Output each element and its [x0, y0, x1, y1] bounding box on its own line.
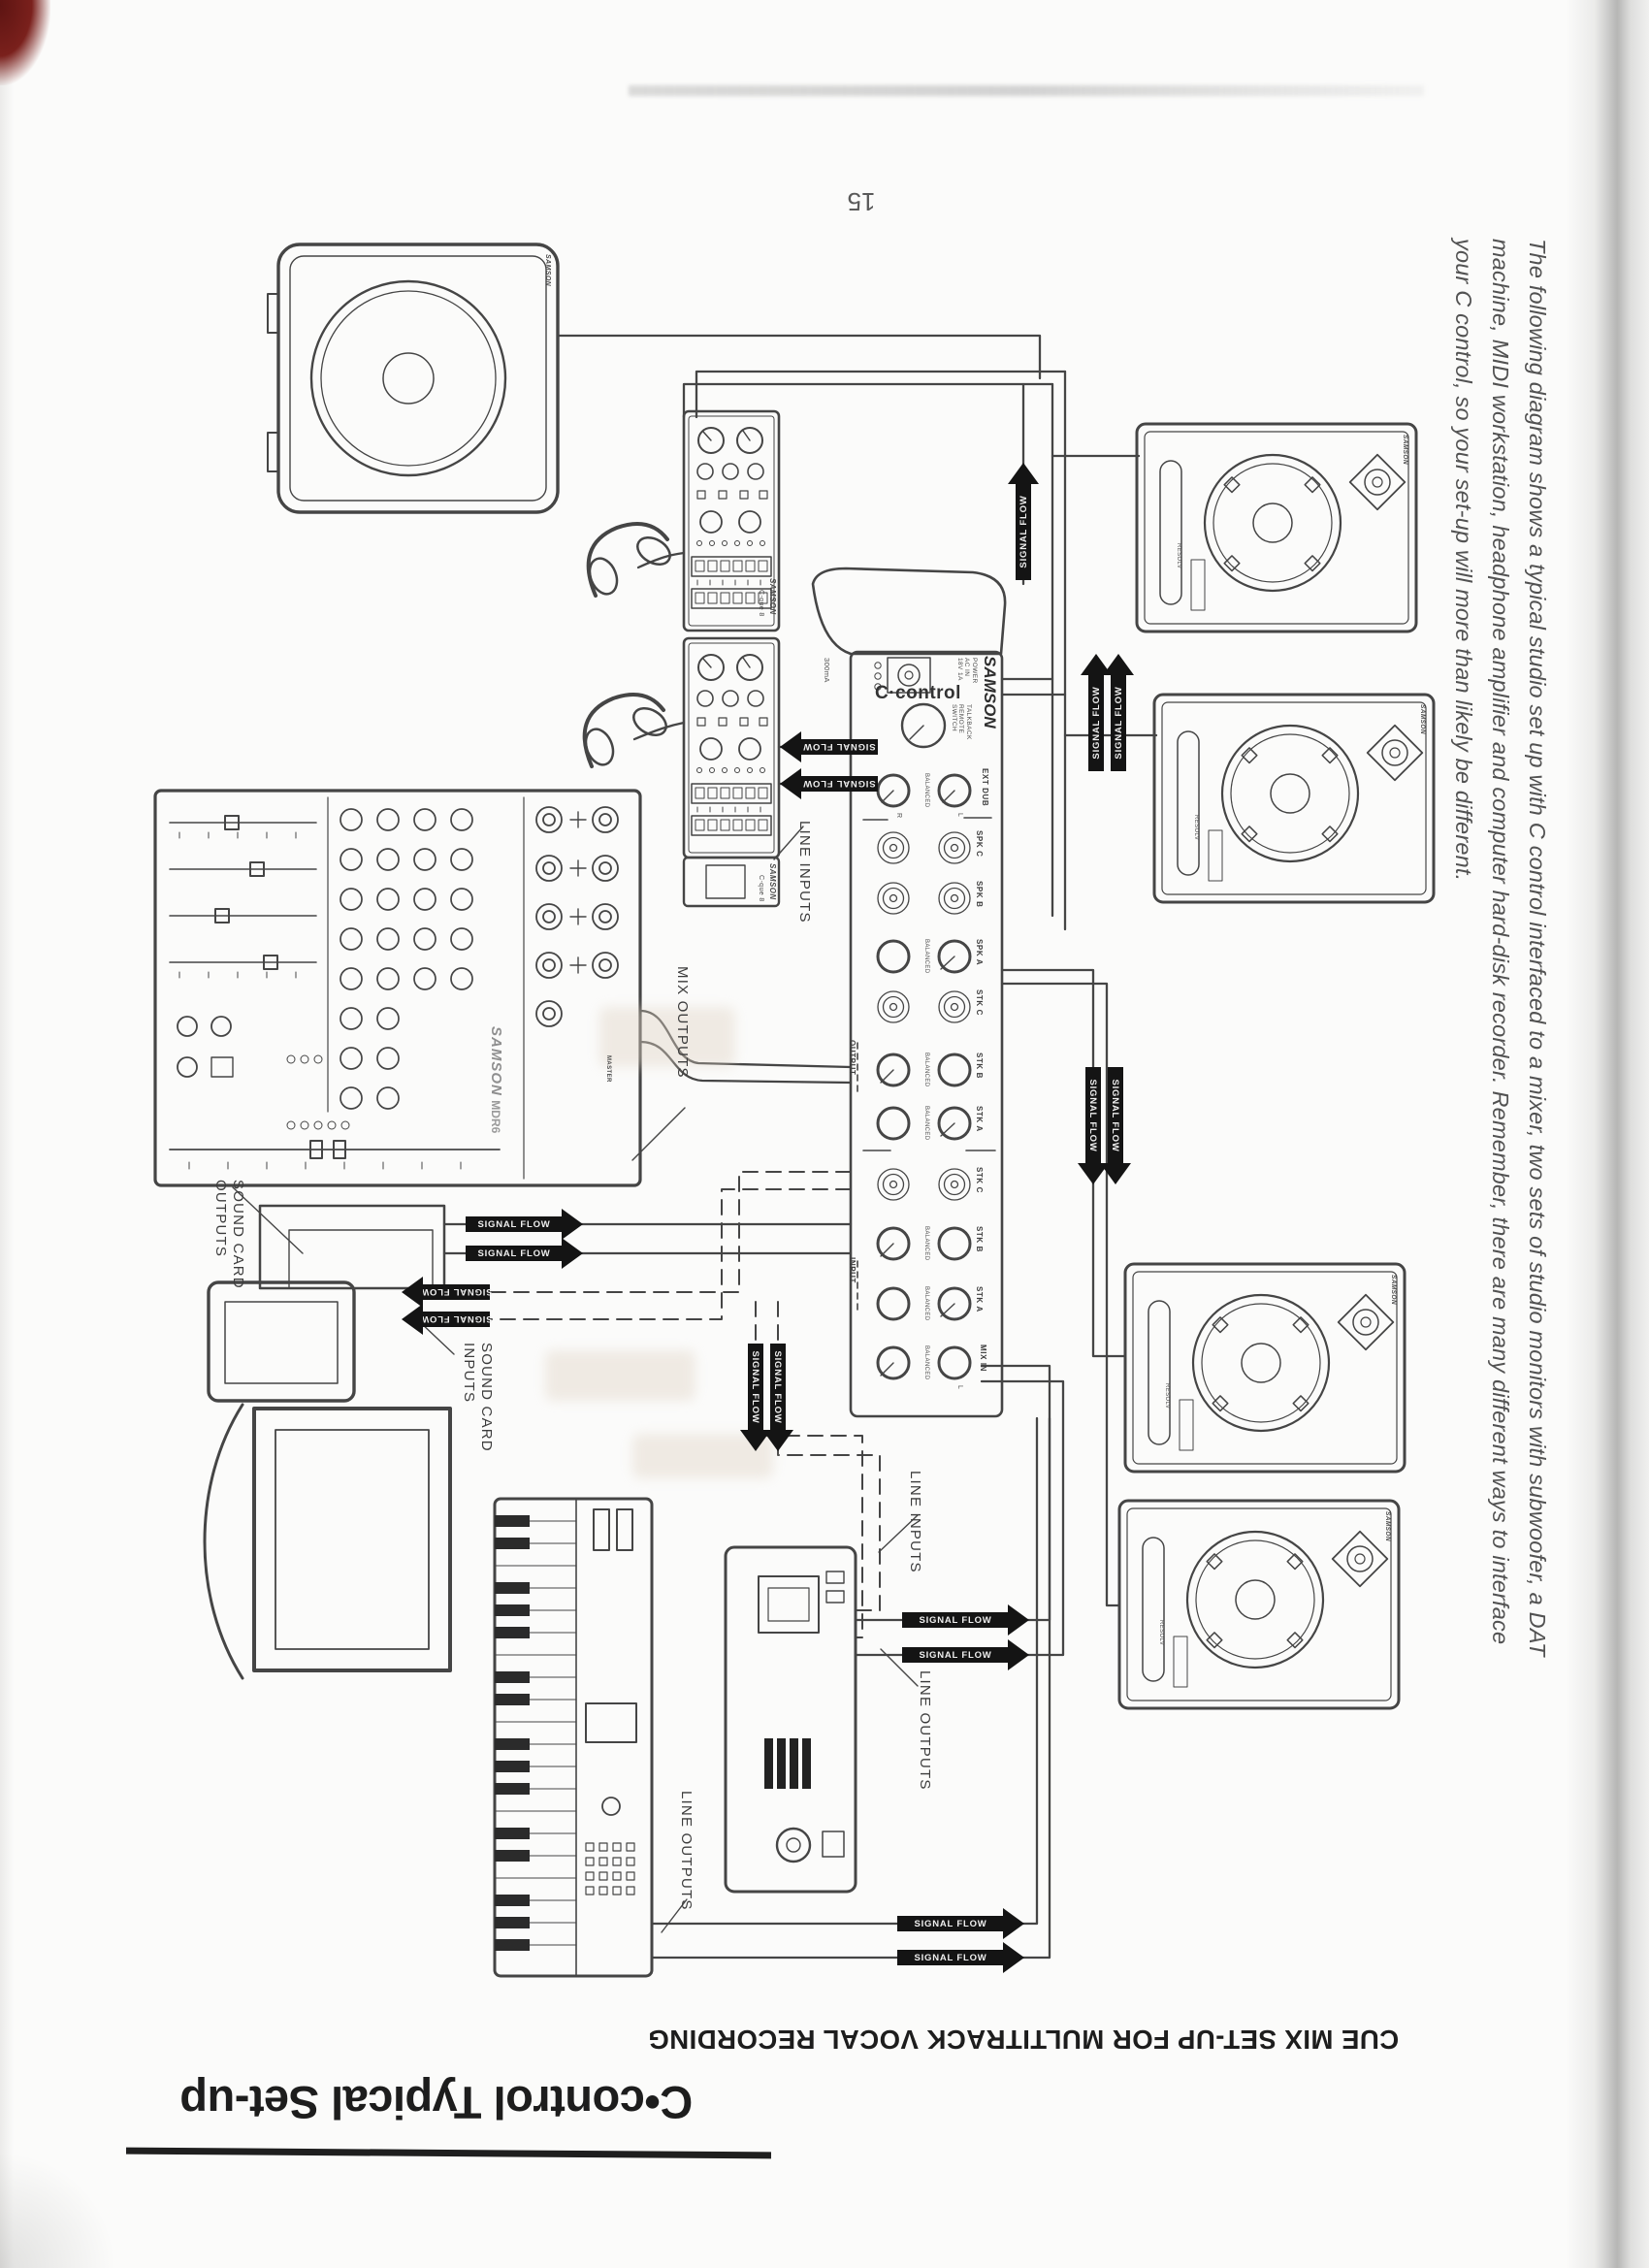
page-number: 15 [832, 186, 890, 216]
monitor-brand: SAMSON [1384, 1511, 1392, 1541]
c-control-section-input: INPUT [848, 1257, 857, 1283]
jack-label: STK C [975, 989, 984, 1016]
signal-flow-arrow: SIGNAL FLOW [1085, 1067, 1101, 1164]
signal-flow-arrow: SIGNAL FLOW [422, 1284, 490, 1300]
label-line-inputs-dat: LINE INPUTS [906, 1471, 923, 1573]
jack-letter-l: L [956, 813, 964, 817]
c-control-talkback-label: TALKBACK REMOTE SWITCH [951, 704, 973, 740]
headphones-2 [581, 695, 671, 768]
c-control-brand: SAMSON [980, 656, 999, 729]
signal-flow-arrow: SIGNAL FLOW [897, 1916, 1004, 1931]
signal-flow-label: SIGNAL FLOW [419, 1287, 492, 1298]
signal-flow-label: SIGNAL FLOW [773, 1350, 784, 1423]
signal-flow-label: SIGNAL FLOW [751, 1350, 761, 1423]
page-subtitle: CUE MIX SET-UP FOR MULTITRACK VOCAL RECO… [524, 2024, 1523, 2055]
signal-flow-label: SIGNAL FLOW [802, 779, 875, 790]
headphone-amp-model: C-que 8 [758, 875, 765, 902]
mixer-master-label: MASTER [604, 1055, 612, 1083]
headphone-amp-brand: SAMSON [769, 578, 777, 615]
subwoofer [268, 244, 558, 512]
signal-flow-arrow: SIGNAL FLOW [770, 1344, 786, 1431]
corner-shadow [0, 2152, 116, 2268]
jack-label: STK A [975, 1106, 984, 1132]
signal-flow-arrow: SIGNAL FLOW [1016, 483, 1031, 580]
signal-flow-arrow: SIGNAL FLOW [800, 739, 878, 755]
scan-streak [629, 85, 1424, 96]
computer-monitor [205, 1405, 450, 1678]
signal-flow-arrow: SIGNAL FLOW [800, 776, 878, 792]
jack-label: STK C [975, 1167, 984, 1193]
label-mix-outputs: MIX OUTPUTS [673, 966, 691, 1079]
show-through-ghost [599, 1007, 735, 1067]
page-edge-shade [0, 0, 14, 2268]
signal-flow-arrow: SIGNAL FLOW [422, 1312, 490, 1327]
signal-flow-label: SIGNAL FLOW [1091, 686, 1102, 759]
intro-paragraph: The following diagram shows a typical st… [1445, 239, 1556, 1857]
jack-label: STK B [975, 1053, 984, 1079]
label-sound-card-outputs: SOUND CARD OUTPUTS [211, 1180, 246, 1289]
studio-monitor-2 [1154, 695, 1434, 902]
studio-monitor-4 [1119, 1501, 1399, 1708]
diagram-line-art [0, 0, 1649, 2268]
signal-flow-label: SIGNAL FLOW [919, 1650, 991, 1661]
scanned-page: 15 The following diagram shows a typical… [0, 0, 1649, 2268]
headphones-1 [585, 524, 675, 598]
page-title: C•control Typical Set-up [136, 2076, 737, 2129]
balanced-label: BALANCED [922, 773, 930, 808]
monitor-series: RESOLV [1157, 1620, 1165, 1645]
signal-flow-arrow: SIGNAL FLOW [902, 1612, 1009, 1628]
jack-label: EXT DUB [981, 768, 989, 806]
jack-label: MIX IN [979, 1345, 987, 1372]
c-control-power-label: POWER AC IN 18V 1A [956, 658, 979, 684]
balanced-label: BALANCED [922, 1226, 930, 1261]
midi-keyboard [495, 1499, 652, 1976]
monitor-series: RESOLV [1192, 815, 1200, 840]
show-through-ghost [545, 1350, 695, 1401]
signal-flow-label: SIGNAL FLOW [477, 1219, 550, 1230]
signal-flow-arrow: SIGNAL FLOW [902, 1647, 1009, 1663]
monitor-series: RESOLV [1175, 543, 1182, 568]
signal-flow-label: SIGNAL FLOW [419, 1314, 492, 1325]
balanced-label: BALANCED [922, 939, 930, 974]
headphone-amp-1 [684, 411, 779, 631]
signal-flow-arrow: SIGNAL FLOW [897, 1950, 1004, 1965]
studio-monitor-3 [1125, 1264, 1405, 1472]
balanced-label: BALANCED [922, 1286, 930, 1321]
page-curl-shadow [1566, 0, 1649, 2268]
signal-flow-label: SIGNAL FLOW [914, 1919, 986, 1929]
signal-flow-label: SIGNAL FLOW [914, 1953, 986, 1963]
mixer-brand: SAMSON [488, 1026, 504, 1096]
jack-label: SPK C [975, 830, 984, 857]
balanced-label: BALANCED [922, 1106, 930, 1141]
signal-flow-label: SIGNAL FLOW [1088, 1079, 1099, 1151]
signal-flow-label: SIGNAL FLOW [1018, 495, 1029, 567]
mixer [155, 791, 640, 1185]
monitor-brand: SAMSON [1402, 435, 1409, 465]
mixer-branding: SAMSON MDR6 [487, 1026, 504, 1133]
balanced-label: BALANCED [922, 1345, 930, 1380]
label-line-outputs-dat: LINE OUTPUTS [916, 1670, 933, 1791]
signal-flow-arrow: SIGNAL FLOW [1111, 674, 1126, 771]
jack-label: STK B [975, 1226, 984, 1252]
headphone-amp-model: C-que 8 [758, 590, 765, 617]
jack-letter-l: L [956, 1385, 964, 1389]
studio-monitor-1 [1137, 424, 1416, 632]
jack-label: SPK A [975, 939, 984, 965]
signal-flow-arrow: SIGNAL FLOW [466, 1216, 563, 1232]
subwoofer-brand: SAMSON [544, 254, 552, 286]
signal-flow-arrow: SIGNAL FLOW [1108, 1067, 1123, 1164]
label-sound-card-inputs: SOUND CARD INPUTS [460, 1343, 495, 1452]
label-line-inputs-top: LINE INPUTS [795, 821, 813, 923]
intro-line-3: your C control, so your set-up will more… [1445, 239, 1482, 1857]
jack-label: SPK B [975, 881, 984, 907]
jack-letter-r: R [895, 813, 903, 818]
c-control-section-output: OUTPUT [848, 1040, 857, 1076]
signal-flow-label: SIGNAL FLOW [1111, 1079, 1121, 1151]
jack-label: STK A [975, 1286, 984, 1312]
balanced-label: BALANCED [922, 1053, 930, 1087]
intro-line-1: The following diagram shows a typical st… [1519, 239, 1556, 1857]
signal-flow-label: SIGNAL FLOW [802, 742, 875, 753]
signal-flow-arrow: SIGNAL FLOW [748, 1344, 763, 1431]
intro-line-2: machine, MIDI workstation, headphone amp… [1482, 239, 1519, 1857]
signal-flow-label: SIGNAL FLOW [1114, 686, 1124, 759]
c-control-power-ma: 300mA [824, 658, 831, 683]
signal-flow-label: SIGNAL FLOW [919, 1615, 991, 1626]
cables-solid [444, 336, 1156, 1958]
monitor-brand: SAMSON [1390, 1275, 1398, 1305]
headphone-amp-2 [684, 638, 779, 906]
headphone-amp-brand: SAMSON [769, 863, 777, 900]
monitor-series: RESOLV [1163, 1383, 1171, 1409]
dat-machine [726, 1547, 856, 1892]
c-control-model: C·control [875, 683, 961, 704]
label-line-outputs-keyboard: LINE OUTPUTS [677, 1791, 695, 1911]
mixer-model: MDR6 [489, 1100, 502, 1133]
monitor-brand: SAMSON [1419, 704, 1427, 734]
signal-flow-label: SIGNAL FLOW [477, 1248, 550, 1259]
signal-flow-arrow: SIGNAL FLOW [466, 1246, 563, 1261]
signal-flow-arrow: SIGNAL FLOW [1088, 674, 1104, 771]
